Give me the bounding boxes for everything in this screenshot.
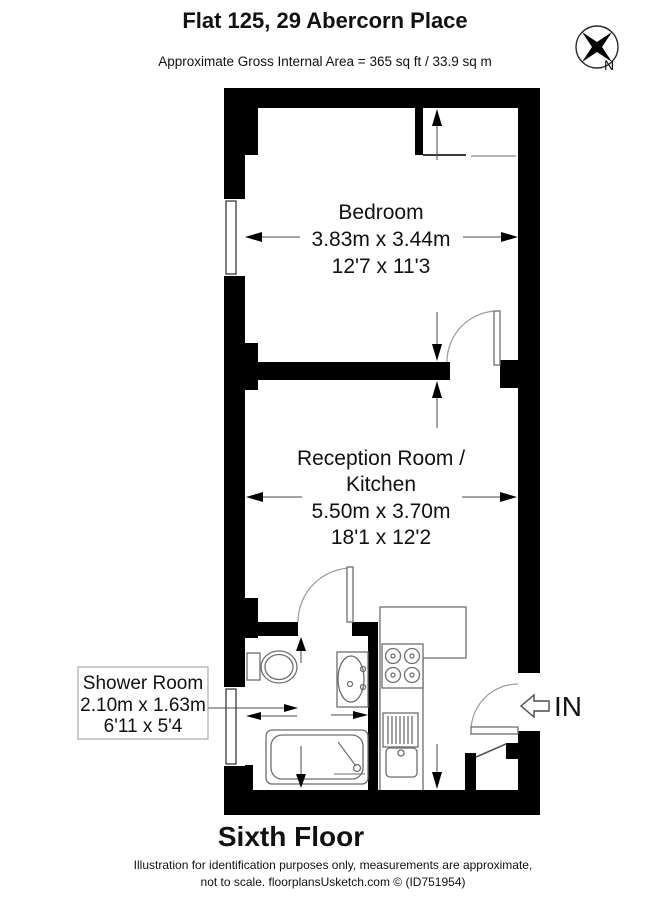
wall-bottom <box>224 790 540 815</box>
wall-shower-top-left <box>245 622 298 636</box>
toilet-bowl <box>261 651 297 683</box>
bedroom-door <box>447 311 500 365</box>
sink-basin <box>386 748 417 777</box>
dim-bedroom-width-right <box>463 232 518 242</box>
compass-north-label: N <box>604 57 614 73</box>
page-title: Flat 125, 29 Abercorn Place <box>182 8 467 33</box>
shower-door-swing-arc <box>298 568 352 622</box>
entrance-label: IN <box>554 691 582 722</box>
compass: N <box>576 26 618 73</box>
floorplan-svg: Flat 125, 29 Abercorn Place Approximate … <box>0 0 650 900</box>
wall-pier-left-bottom <box>245 765 253 790</box>
dim-reception-height-bottom <box>432 744 442 789</box>
shower-door-leaf <box>347 567 353 622</box>
toilet <box>247 651 297 683</box>
bedroom-door-leaf <box>494 311 500 365</box>
reception-size-imperial: 18'1 x 12'2 <box>331 526 431 549</box>
wall-pier-top-left <box>245 88 258 155</box>
floor-label: Sixth Floor <box>218 821 364 852</box>
shower-room-size-imperial: 6'11 x 5'4 <box>104 716 183 737</box>
bedroom-size-metric: 3.83m x 3.44m <box>312 228 451 251</box>
basin-vanity <box>337 652 368 707</box>
dim-shower-width-right <box>331 711 368 719</box>
shower-room-name: Shower Room <box>83 673 203 694</box>
dim-reception-width-right <box>462 492 517 502</box>
dim-shower-width-left <box>246 712 297 720</box>
dim-reception-width-left <box>246 492 302 502</box>
shower-room-size-metric: 2.10m x 1.63m <box>80 695 206 716</box>
dim-reception-height-top <box>432 381 442 428</box>
reception-name-line2: Kitchen <box>346 473 416 496</box>
kitchen-sink <box>383 713 418 777</box>
bathtub <box>266 730 368 784</box>
entrance-door <box>471 684 518 734</box>
wall-pier-right-mid <box>500 360 518 388</box>
disclaimer-line2: not to scale. floorplansUsketch.com © (I… <box>201 875 466 889</box>
wall-top <box>224 88 540 108</box>
floorplan-page: Flat 125, 29 Abercorn Place Approximate … <box>0 0 650 900</box>
bathroom-fixtures <box>247 651 368 784</box>
wall-closet-stub <box>415 108 423 155</box>
reception-size-metric: 5.50m x 3.70m <box>312 500 451 523</box>
hob <box>382 644 423 688</box>
dim-bedroom-width-left <box>245 232 300 242</box>
entrance-door-swing-arc <box>471 684 518 731</box>
shower-door <box>298 567 353 622</box>
dim-shower-height-top <box>296 637 306 663</box>
reception-name-line1: Reception Room / <box>297 447 465 470</box>
dim-bedroom-height-top <box>432 109 442 160</box>
disclaimer-line1: Illustration for identification purposes… <box>134 858 533 872</box>
wall-divider-bedroom <box>245 362 450 380</box>
wall-entrance-closet-left <box>465 753 476 790</box>
wall-kitchen-divider <box>368 622 378 790</box>
bedroom-window <box>226 201 236 274</box>
bedroom-size-imperial: 12'7 x 11'3 <box>332 255 431 278</box>
page-subtitle: Approximate Gross Internal Area = 365 sq… <box>158 54 492 69</box>
shower-window <box>226 689 236 764</box>
bedroom-name: Bedroom <box>338 201 423 224</box>
shower-room-label-box: Shower Room 2.10m x 1.63m 6'11 x 5'4 <box>78 667 208 739</box>
dim-bedroom-height-bottom <box>432 312 442 361</box>
sink-drainer-ridges <box>388 716 412 744</box>
bedroom-door-swing-arc <box>447 311 498 362</box>
kitchen-fixtures <box>380 607 466 790</box>
wall-entrance-closet-right <box>506 743 518 759</box>
bathtub-outer <box>266 730 368 784</box>
toilet-cistern <box>247 653 260 680</box>
entrance-door-leaf <box>471 727 518 734</box>
shower-label-leader <box>207 704 298 712</box>
entrance-closet-door-line <box>476 744 506 757</box>
